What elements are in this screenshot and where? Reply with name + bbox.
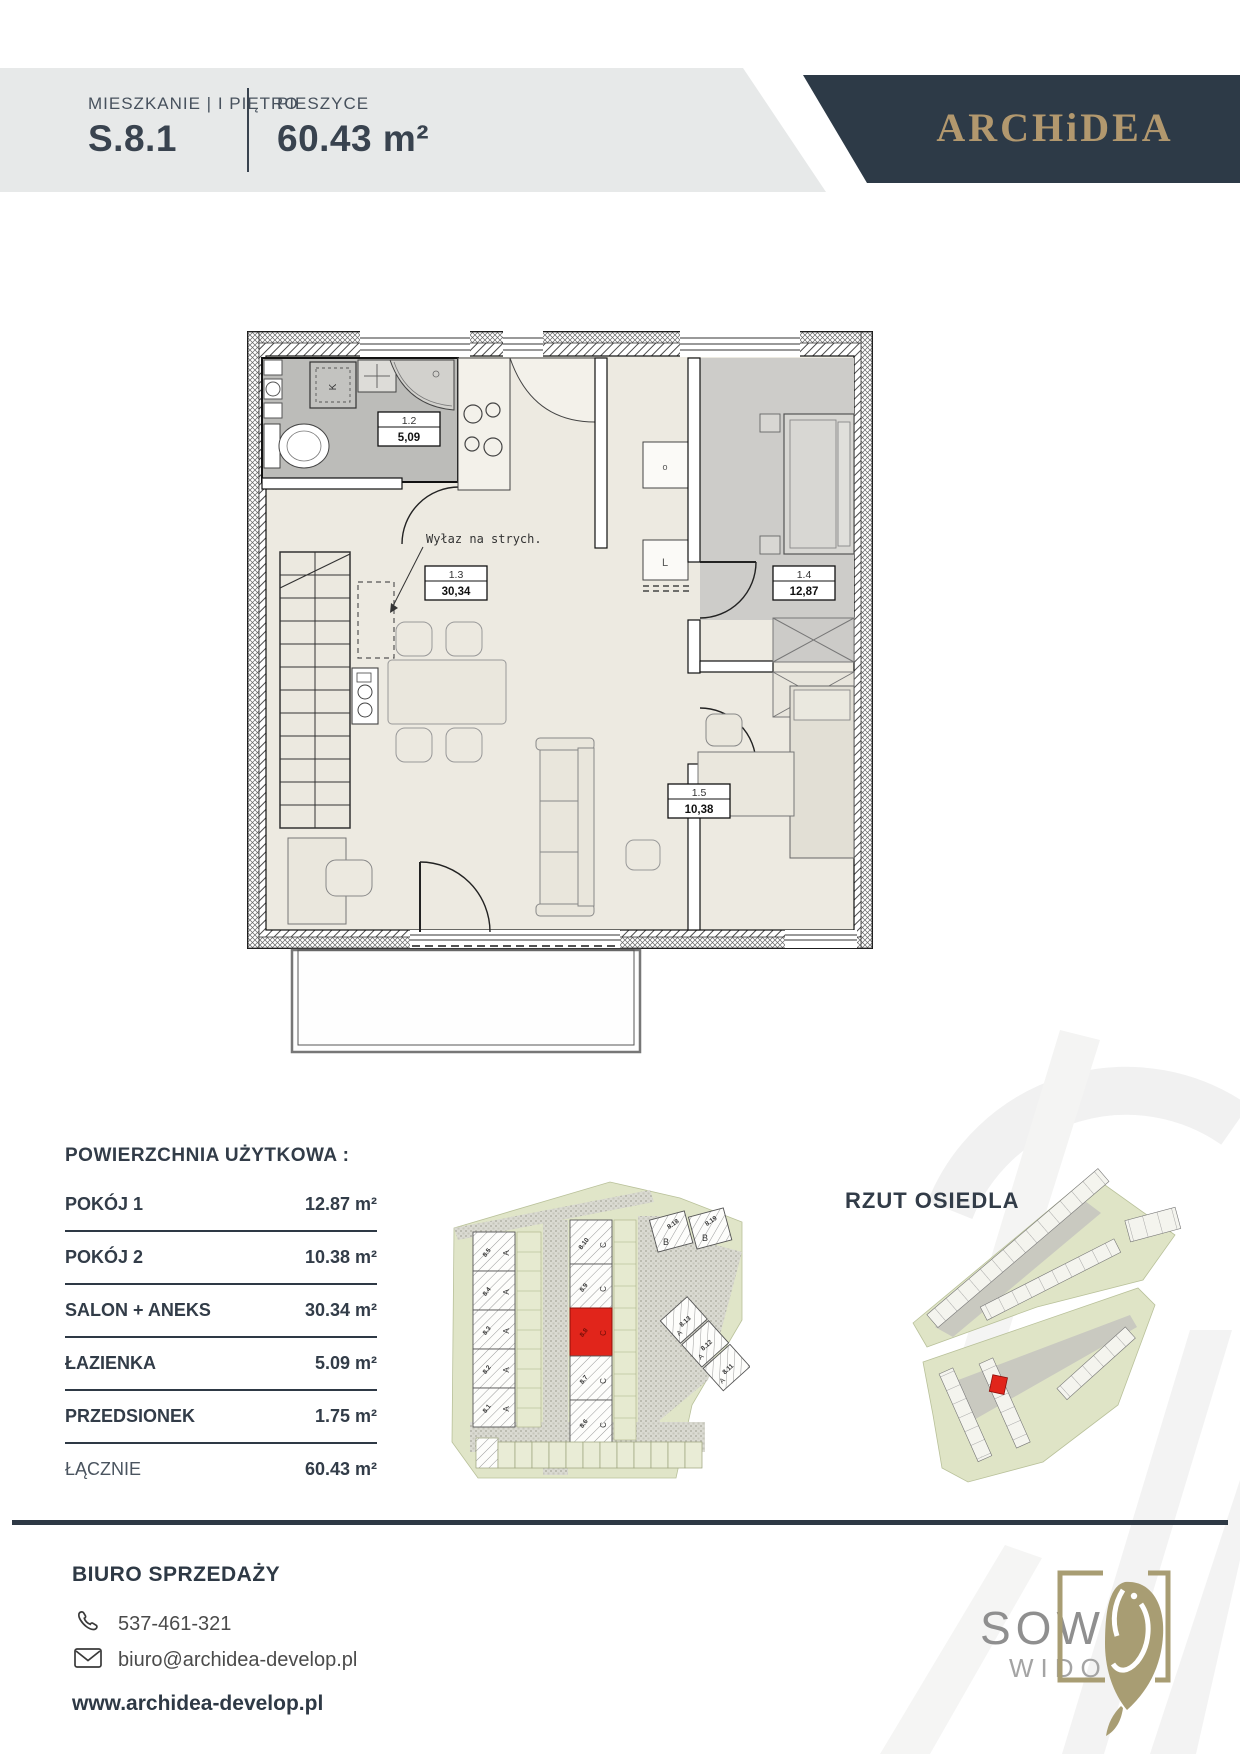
attic-note: Wyłaz na strych.: [426, 532, 542, 546]
site-plan: 8.5A 8.4A 8.3A 8.2A 8.1A 8.10C 8.9C 8.8C…: [440, 1170, 750, 1485]
sowi-text: SOWI: [980, 1602, 1123, 1654]
table-row: SALON + ANEKS30.34 m²: [65, 1285, 377, 1338]
building-a: 8.5A 8.4A 8.3A 8.2A 8.1A: [473, 1232, 515, 1427]
brochure-page: MIESZKANIE | I PIĘTRO S.8.1 PIESZYCE 60.…: [0, 0, 1240, 1754]
footer-divider: [12, 1520, 1228, 1525]
estate-highlighted-unit: [989, 1375, 1007, 1395]
svg-text:C: C: [599, 1378, 608, 1384]
room-label-bedroom2: 1.5 10,38: [668, 784, 730, 818]
area-table: POWIERZCHNIA UŻYTKOWA : POKÓJ 112.87 m² …: [65, 1145, 377, 1495]
washing-machine-icon: K: [310, 362, 356, 408]
svg-text:30,34: 30,34: [442, 586, 471, 598]
svg-text:C: C: [599, 1330, 608, 1336]
stairs-side-cabinet: [352, 668, 378, 724]
cabinet-tall-label: L: [662, 557, 668, 569]
svg-text:K: K: [328, 383, 339, 390]
sowi-widok-logo: SOWI WIDOK: [955, 1560, 1195, 1740]
svg-text:B: B: [663, 1237, 669, 1247]
mail-icon: [73, 1646, 103, 1670]
svg-text:5,09: 5,09: [398, 432, 420, 444]
room-label-bedroom1: 1.4 12,87: [773, 566, 835, 600]
archidea-logo: ARCHiDEA: [880, 104, 1230, 151]
svg-text:10,38: 10,38: [685, 804, 714, 816]
parking-row: [476, 1438, 702, 1468]
svg-text:C: C: [599, 1422, 608, 1428]
cabinet-small-label: o: [662, 462, 667, 472]
table-row: PRZEDSIONEK1.75 m²: [65, 1391, 377, 1444]
website-url[interactable]: www.archidea-develop.pl: [72, 1692, 323, 1716]
stairs: [280, 552, 350, 828]
svg-text:C: C: [599, 1242, 608, 1248]
room-label-bathroom: 1.2 5,09: [378, 412, 440, 446]
washbasin-icon: [358, 360, 396, 392]
room-label-living: 1.3 30,34: [425, 566, 487, 600]
table-row: ŁAZIENKA5.09 m²: [65, 1338, 377, 1391]
estate-map: [905, 1165, 1185, 1490]
svg-text:A: A: [502, 1328, 511, 1334]
balcony: [292, 950, 640, 1052]
svg-text:1.3: 1.3: [449, 569, 464, 581]
floor-plan: K: [240, 300, 880, 1060]
area-table-title: POWIERZCHNIA UŻYTKOWA :: [65, 1145, 377, 1167]
svg-text:A: A: [502, 1367, 511, 1373]
svg-text:1.2: 1.2: [402, 415, 417, 427]
email-address[interactable]: biuro@archidea-develop.pl: [118, 1649, 357, 1672]
highlighted-unit: 8.8C: [570, 1308, 612, 1356]
toilet-icon: [264, 424, 329, 468]
svg-text:A: A: [502, 1250, 511, 1256]
phone-icon: [74, 1608, 102, 1636]
table-row: POKÓJ 112.87 m²: [65, 1179, 377, 1232]
armchair: [626, 840, 660, 870]
svg-text:1.5: 1.5: [692, 787, 707, 799]
total-area: 60.43 m²: [277, 118, 429, 160]
unit-id: S.8.1: [88, 118, 177, 160]
svg-text:C: C: [599, 1286, 608, 1292]
sales-office-title: BIURO SPRZEDAŻY: [72, 1563, 280, 1587]
table-row-total: ŁĄCZNIE60.43 m²: [65, 1444, 377, 1495]
unit-type-label: MIESZKANIE | I PIĘTRO: [88, 94, 299, 114]
phone-number[interactable]: 537-461-321: [118, 1613, 231, 1636]
building-c: 8.10C 8.9C 8.8C 8.7C 8.6C: [570, 1220, 612, 1444]
svg-text:1.4: 1.4: [797, 569, 812, 581]
svg-text:A: A: [502, 1289, 511, 1295]
sofa: [536, 738, 594, 916]
svg-text:B: B: [702, 1233, 708, 1243]
table-row: POKÓJ 210.38 m²: [65, 1232, 377, 1285]
header-divider: [247, 88, 249, 172]
svg-text:A: A: [502, 1406, 511, 1412]
svg-text:12,87: 12,87: [790, 586, 819, 598]
city-label: PIESZYCE: [277, 94, 369, 114]
